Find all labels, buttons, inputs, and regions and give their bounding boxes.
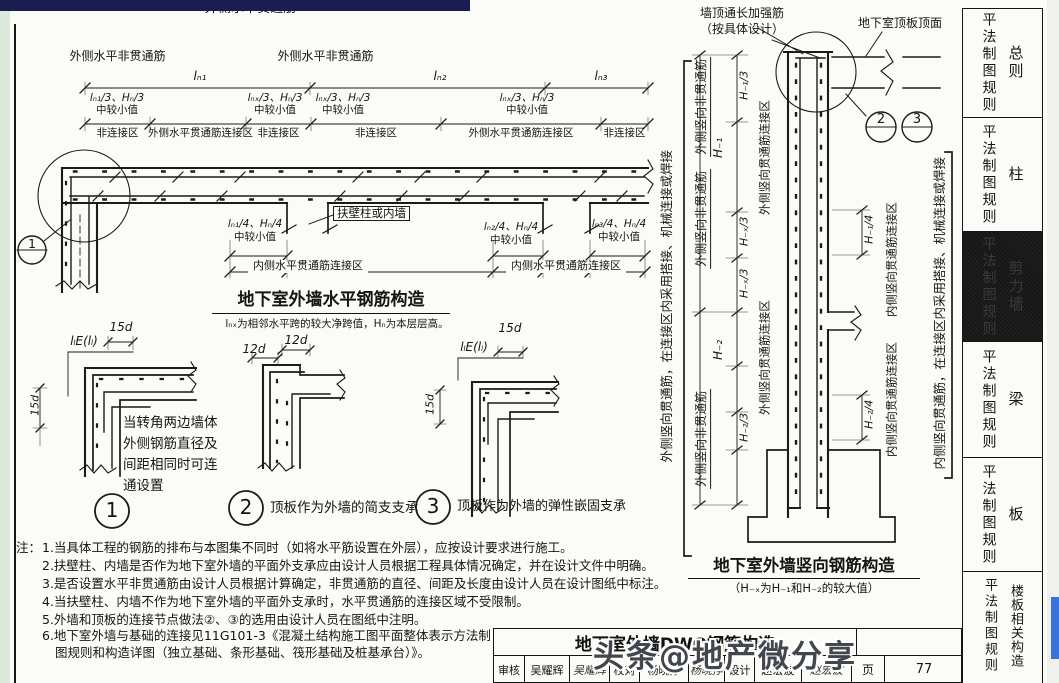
detail2-caption: 顶板作为外墙的简支支承: [270, 501, 450, 517]
note-item-4: 4.当扶壁柱、内墙不作为地下室外墙的平面外支承时，水平贯通筋的连接区域不受限制。: [42, 591, 529, 610]
basement-roof-slab-top-label: 地下室顶板顶面: [850, 17, 950, 31]
min-value-1-expr: lₙ₁/3、Hₙ/3: [84, 92, 150, 104]
vertical-diagram-subtitle: （H₋ₓ为H₋₁和H₋₂的较大值）: [694, 582, 914, 595]
detail1-dim-lap: lₗE(lₗ): [56, 335, 112, 349]
outer-vertical-splice-zone-label-2: 外侧竖向贯通筋连接区: [758, 298, 771, 418]
note-item-2: 2.扶壁柱、内墙是否作为地下室外墙的平面外支承应由设计人员根据工程具体情况确定，…: [42, 555, 654, 574]
inner-splice-zone-label-2: 内侧水平贯通筋连接区: [506, 260, 626, 273]
inner-vertical-splice-zone-label-1: 内侧竖向贯通筋连接区: [885, 200, 898, 320]
quarter-value-1-expr: lₙ₁/4、Hₙ/4: [218, 218, 292, 230]
right-blue-strip: [1051, 597, 1059, 659]
inner-vertical-splice-zone-label-2: 内侧竖向贯通筋连接区: [885, 340, 898, 460]
left-edge-strip: [0, 11, 10, 683]
outer-vertical-non-through-bar-label-2: 外侧竖向非贯通筋: [695, 169, 711, 269]
detail3-number: 3: [425, 495, 441, 518]
quarter-value-3-expr: lₙ₃/4、Hₙ/4: [584, 218, 654, 230]
sidebar-tab-column: 平法制图规则 柱: [963, 118, 1042, 232]
span-dim-ln3: lₙ₃: [586, 70, 616, 84]
label-outer-non-through-bar-1: 外侧水平非贯通筋: [60, 50, 175, 64]
min-value-4-text: 中较小值: [494, 104, 560, 116]
detail3-dim-15d-side: 15d: [425, 389, 438, 419]
quarter-value-3-text: 中较小值: [584, 231, 654, 243]
right-edge-strip: [1047, 0, 1059, 683]
note-item-5: 5.外墙和顶板的连接节点做法②、③的选用由设计人员在图纸中注明。: [42, 609, 426, 628]
outer-vertical-through-bar-bracket-note: 外侧竖向贯通筋，在连接区内采用搭接、机械连接或焊接: [660, 136, 674, 476]
note-item-6: 6.地下室外墙与基础的连接见11G101-3《混凝土结构施工图平面整体表示方法制…: [42, 627, 500, 661]
sheet-frame-left: [14, 24, 16, 683]
tab-category-text: 总则: [1006, 45, 1027, 81]
tab-category-text: 板: [1006, 506, 1027, 524]
detail2-dim-12d-b: 12d: [280, 334, 312, 348]
detail1-note: 当转角两边墙体外侧钢筋直径及间距相同时可连通设置: [123, 413, 219, 497]
dim-H2-third-bottom: H₋₂/3: [739, 403, 752, 451]
outer-vertical-non-through-bar-label-1: 外侧竖向非贯通筋: [695, 57, 711, 157]
tab-category-text: 楼板相关构造: [1006, 584, 1025, 668]
label-outer-non-through-bar-2: 外侧水平非贯通筋: [268, 50, 383, 64]
detail-bubble-2-number: 2: [873, 113, 889, 128]
dim-H-1-story: H₋₁: [712, 128, 726, 168]
span-dim-ln1: lₙ₁: [185, 70, 215, 84]
zone-label: 非连接区: [601, 127, 648, 139]
min-value-4-expr: lₙₓ/3、Hₙ/3: [494, 92, 560, 104]
toutiao-watermark: 头条@地产微分享: [593, 631, 993, 676]
tab-rule-text: 平法制图规则: [979, 349, 999, 451]
tab-rule-text: 平法制图规则: [979, 124, 999, 226]
detail3-dim-lap: lₗE(lₗ): [446, 341, 502, 355]
zone-label: 非连接区: [311, 127, 441, 139]
inner-splice-zone-label-1: 内侧水平贯通筋连接区: [248, 260, 368, 273]
inner-vertical-through-bar-bracket-note: 内侧竖向贯通筋，在连接区内采用搭接、机械连接或焊接: [933, 143, 947, 483]
tab-rule-text: 平法制图规则: [979, 236, 999, 338]
wall-top-strengthen-bar-label: 墙顶通长加强筋: [694, 7, 790, 21]
tab-category-text: 剪力墙: [1006, 260, 1027, 314]
detail2-number: 2: [238, 496, 254, 519]
zone-label: 非连接区: [246, 127, 311, 139]
span-dim-ln2: lₙ₂: [425, 70, 455, 84]
quarter-value-2-text: 中较小值: [476, 234, 546, 246]
vertical-diagram-title: 地下室外墙竖向钢筋构造: [688, 557, 920, 579]
atlas-section-sidebar: 平法制图规则 总则 平法制图规则 柱 平法制图规则 剪力墙 平法制图规则 梁 平…: [962, 8, 1043, 683]
quarter-value-1-text: 中较小值: [218, 231, 292, 243]
dim-H1-third-top: H₋₁/3: [739, 61, 752, 109]
min-value-2-expr: lₙₓ/3、Hₙ/3: [242, 92, 308, 104]
detail2-dim-12d-a: 12d: [238, 343, 270, 357]
min-value-1-text: 中较小值: [84, 104, 150, 116]
detail1-dim-15d-side: 15d: [30, 390, 43, 420]
dim-Hx-third-b: H₋ₓ/3: [739, 259, 752, 307]
tab-rule-text: 平法制图规则: [979, 12, 999, 114]
scanned-drawing-page: 外侧水平贯通筋 外侧水平非贯通筋 外侧水平非贯通筋 lₙ₁ lₙ₂ lₙ₃ lₙ…: [0, 0, 1059, 683]
sidebar-tab-slab: 平法制图规则 板: [963, 458, 1042, 572]
min-value-3-text: 中较小值: [310, 104, 376, 116]
note-item-1: 1.当具体工程的钢筋的排布与本图集不同时（如将水平筋设置在外层），应按设计要求进…: [42, 537, 573, 556]
min-value-2-text: 中较小值: [242, 104, 308, 116]
dim-H-2-story: H₋₂: [712, 330, 726, 370]
dim-H2-quarter: H₋₂/4: [864, 390, 877, 438]
horizontal-diagram-title: 地下室外墙水平钢筋构造: [212, 291, 450, 314]
label-buttress-or-inner-wall: 扶壁柱或内墙: [333, 206, 410, 221]
zone-label: 非连接区: [85, 127, 150, 139]
tab-category-text: 梁: [1006, 391, 1027, 409]
top-navy-bar: [0, 0, 470, 11]
detail1-number: 1: [104, 499, 120, 522]
sidebar-tab-general: 平法制图规则 总则: [963, 9, 1042, 118]
wall-top-strengthen-bar-note: （按具体设计）: [690, 23, 794, 37]
tab-category-text: 柱: [1006, 166, 1027, 184]
credit-name-reviewer: 吴耀辉: [524, 655, 569, 683]
dim-H1-quarter: H₋₁/4: [864, 205, 877, 253]
zone-label: 外侧水平贯通筋连接区: [148, 127, 248, 139]
notes-heading: 注：: [16, 537, 41, 556]
detail3-dim-15d-top: 15d: [492, 322, 528, 336]
min-value-3-expr: lₙₓ/3、Hₙ/3: [310, 92, 376, 104]
detail-bubble-3-number: 3: [909, 113, 925, 128]
sidebar-tab-shear-wall-active: 平法制图规则 剪力墙: [963, 232, 1042, 342]
outer-vertical-non-through-bar-label-3: 外侧竖向非贯通筋: [695, 389, 711, 489]
tab-rule-text: 平法制图规则: [979, 464, 999, 566]
quarter-value-2-expr: lₙ₂/4、Hₙ/4: [476, 221, 546, 233]
sidebar-tab-beam: 平法制图规则 梁: [963, 342, 1042, 458]
detail3-caption: 顶板作为外墙的弹性嵌固支承: [457, 500, 637, 515]
detail-bubble-1-number: 1: [24, 237, 40, 251]
detail1-dim-15d-top: 15d: [103, 321, 139, 335]
note-item-3: 3.是否设置水平非贯通筋由设计人员根据计算确定，非贯通筋的直径、间距及长度由设计…: [42, 573, 666, 592]
dim-Hx-third-a: H₋ₓ/3: [739, 207, 752, 255]
credit-role-reviewer: 审核: [494, 655, 524, 683]
horizontal-diagram-subtitle: lₙₓ为相邻水平跨的较大净跨值，Hₙ为本层层高。: [212, 318, 462, 330]
outer-vertical-splice-zone-label-1: 外侧竖向贯通筋连接区: [758, 98, 771, 218]
zone-label: 外侧水平贯通筋连接区: [441, 127, 601, 139]
